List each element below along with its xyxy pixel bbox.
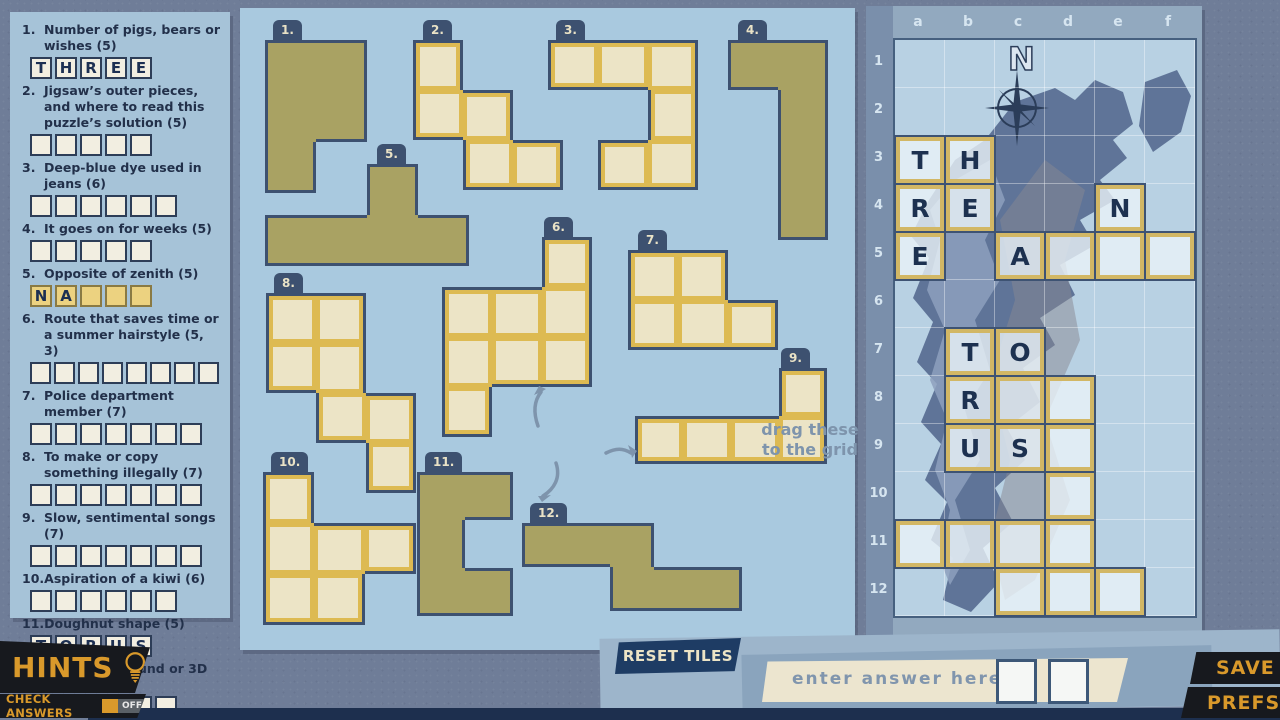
answer-cell[interactable]: [105, 195, 127, 217]
piece-cell: [367, 215, 418, 266]
piece-cell: [316, 293, 366, 343]
grid-tile[interactable]: O: [996, 329, 1044, 375]
answer-cell[interactable]: [54, 362, 75, 384]
piece-cell-face: [496, 341, 538, 380]
piece-cell: [463, 90, 513, 140]
clue-text: Slow, sentimental songs (7): [44, 510, 222, 542]
piece-cell: [417, 472, 465, 520]
grid-tile[interactable]: H: [946, 137, 994, 183]
answer-cell[interactable]: [30, 484, 52, 506]
piece-cell: [265, 40, 316, 91]
clue-answer-cells: [30, 134, 222, 156]
piece-cell-face: [420, 47, 456, 86]
answer-cell[interactable]: [155, 545, 177, 567]
answer-cell[interactable]: [130, 285, 152, 307]
grid-row-label: 10: [866, 486, 891, 501]
piece-cell: [610, 523, 654, 567]
piece-cell: [683, 416, 731, 464]
piece-cell: [492, 287, 542, 337]
piece-cell: [316, 393, 366, 443]
grid-tile[interactable]: [946, 521, 994, 567]
piece-cell-face: [635, 257, 674, 296]
grid-tile[interactable]: [996, 377, 1044, 423]
piece-cell-face: [642, 423, 679, 457]
piece-cell: [316, 40, 367, 91]
piece-number-tab: 5.: [377, 144, 406, 164]
piece-cell: [542, 287, 592, 337]
grid-tile[interactable]: [1046, 425, 1094, 471]
grid-row-label: 3: [866, 150, 891, 165]
answer-cell[interactable]: E: [105, 57, 127, 79]
clue-number: 9.: [22, 510, 44, 542]
clue-heading: 9.Slow, sentimental songs (7): [22, 510, 222, 542]
clue-answer-cells: [30, 240, 222, 262]
answer-cell[interactable]: [30, 240, 52, 262]
clue-item: 3.Deep-blue dye used in jeans (6): [22, 160, 222, 217]
piece-cell: [316, 215, 367, 266]
grid-row-label: 5: [866, 246, 891, 261]
piece-cell: [366, 393, 416, 443]
answer-cell[interactable]: [155, 195, 177, 217]
clue-item: 6.Route that saves time or a summer hair…: [22, 311, 222, 384]
answer-cell[interactable]: [80, 240, 102, 262]
grid-row-label: 11: [866, 534, 891, 549]
answer-cell[interactable]: [80, 590, 102, 612]
piece-cell: [314, 523, 365, 574]
answer-cell[interactable]: [130, 240, 152, 262]
piece-cell: [263, 574, 314, 625]
clue-number: 1.: [22, 22, 44, 54]
piece-cell: [778, 40, 828, 90]
piece-cell: [316, 343, 366, 393]
piece-cell-face: [270, 479, 307, 519]
piece-cell-face: [320, 347, 359, 389]
piece-cell: [648, 140, 698, 190]
piece-number-tab: 9.: [781, 348, 810, 368]
prefs-label: PREFS: [1207, 692, 1280, 714]
clue-number: 5.: [22, 266, 44, 282]
hints-label: HINTS: [12, 651, 114, 684]
check-answers-toggle[interactable]: OFF: [102, 699, 146, 713]
piece-cell: [365, 523, 416, 574]
piece-number-tab: 8.: [274, 273, 303, 293]
clue-answer-cells: [30, 484, 222, 506]
piece-cell-face: [682, 304, 724, 343]
toggle-knob: [102, 699, 118, 713]
answer-cell[interactable]: A: [55, 285, 77, 307]
grid-tile[interactable]: S: [996, 425, 1044, 471]
piece-cell: [442, 287, 492, 337]
piece-cell-face: [449, 391, 485, 430]
clue-item: 8.To make or copy something illegally (7…: [22, 449, 222, 506]
grid-row-label: 12: [866, 582, 891, 597]
piece-cell: [598, 140, 648, 190]
piece-cell-face: [449, 294, 488, 333]
piece-cell: [263, 472, 314, 523]
piece-cell: [266, 343, 316, 393]
clue-heading: 3.Deep-blue dye used in jeans (6): [22, 160, 222, 192]
clue-answer-cells: [30, 545, 222, 567]
piece-cell: [265, 142, 316, 193]
grid-col-label: a: [893, 14, 943, 30]
answer-cell[interactable]: R: [80, 57, 102, 79]
answer-cell[interactable]: [30, 134, 52, 156]
piece-cell: [635, 416, 683, 464]
piece-cell-face: [270, 527, 310, 570]
piece-number-tab: 12.: [530, 503, 567, 523]
piece-cell-face: [652, 47, 691, 86]
grid-row-label: 7: [866, 342, 891, 357]
piece-cell: [442, 387, 492, 437]
clue-heading: 1.Number of pigs, bears or wishes (5): [22, 22, 222, 54]
clue-item: 4.It goes on for weeks (5): [22, 221, 222, 262]
clue-answer-cells: NA: [30, 285, 222, 307]
piece-cell: [442, 337, 492, 387]
grid-tile[interactable]: [1046, 377, 1094, 423]
grid-tile[interactable]: A: [996, 233, 1044, 279]
piece-cell: [367, 164, 418, 215]
piece-number-tab: 4.: [738, 20, 767, 40]
piece-cell-face: [420, 94, 459, 133]
grid-row-label: 4: [866, 198, 891, 213]
piece-number-tab: 11.: [425, 452, 462, 472]
game-screen: 1.Number of pigs, bears or wishes (5)THR…: [0, 0, 1280, 720]
grid-tile[interactable]: [1046, 569, 1094, 615]
piece-cell: [678, 250, 728, 300]
clue-number: 8.: [22, 449, 44, 481]
piece-cell: [314, 574, 365, 625]
piece-number-tab: 1.: [273, 20, 302, 40]
answer-cell[interactable]: [55, 590, 77, 612]
answer-cell[interactable]: [155, 590, 177, 612]
grid-tile[interactable]: [1096, 569, 1144, 615]
answer-cell[interactable]: [105, 240, 127, 262]
clue-number: 6.: [22, 311, 44, 359]
grid-col-label: e: [1093, 14, 1143, 30]
piece-number-tab: 10.: [271, 452, 308, 472]
clue-item: 9.Slow, sentimental songs (7): [22, 510, 222, 567]
piece-cell-face: [467, 97, 506, 136]
clue-answer-cells: [30, 423, 222, 445]
piece-cell: [266, 293, 316, 343]
answer-prompt-label: enter answer here:: [792, 669, 1011, 689]
piece-cell-face: [687, 423, 727, 457]
piece-cell: [548, 40, 598, 90]
grid-tile[interactable]: E: [896, 233, 944, 279]
piece-cell-face: [602, 47, 644, 83]
piece-cell-face: [323, 397, 362, 436]
clue-item: 10.Aspiration of a kiwi (6): [22, 571, 222, 612]
grid-tile[interactable]: T: [896, 137, 944, 183]
piece-cell: [648, 90, 698, 140]
piece-cell-face: [273, 300, 312, 339]
piece-cell: [522, 523, 566, 567]
clue-text: Aspiration of a kiwi (6): [44, 571, 222, 587]
answer-cell[interactable]: [102, 362, 123, 384]
piece-cell-face: [732, 307, 771, 343]
piece-cell-face: [370, 400, 409, 439]
clue-item: 5.Opposite of zenith (5)NA: [22, 266, 222, 307]
piece-cell-face: [369, 530, 409, 567]
answer-cell[interactable]: [198, 362, 219, 384]
piece-cell: [316, 91, 367, 142]
grid-tile[interactable]: [1046, 473, 1094, 519]
check-answers-label: CHECK ANSWERS: [6, 692, 97, 720]
answer-cell[interactable]: [130, 545, 152, 567]
clue-text: Doughnut shape (5): [44, 616, 222, 632]
clue-text: Jigsaw’s outer pieces, and where to read…: [44, 83, 222, 131]
save-button[interactable]: SAVE: [1190, 652, 1280, 684]
piece-cell: [778, 190, 828, 240]
answer-cell[interactable]: [130, 484, 152, 506]
piece-cell: [513, 140, 563, 190]
piece-cell: [418, 215, 469, 266]
answer-cell[interactable]: [126, 362, 147, 384]
piece-number-tab: 2.: [423, 20, 452, 40]
answer-cell[interactable]: [180, 423, 202, 445]
grid-col-label: f: [1143, 14, 1193, 30]
grid-tile[interactable]: [996, 521, 1044, 567]
grid-tile[interactable]: U: [946, 425, 994, 471]
piece-cell: [698, 567, 742, 611]
map-grid-panel: abcdef 123456789101112 N THREENATORUS: [866, 6, 1202, 636]
grid-col-label: d: [1043, 14, 1093, 30]
clue-list: 1.Number of pigs, bears or wishes (5)THR…: [22, 22, 222, 718]
clue-answer-cells: [30, 195, 222, 217]
answer-cell[interactable]: [105, 484, 127, 506]
clue-number: 10.: [22, 571, 44, 587]
piece-cell: [610, 567, 654, 611]
clue-heading: 7.Police department member (7): [22, 388, 222, 420]
table-edge: [88, 708, 1280, 720]
answer-cell[interactable]: [105, 590, 127, 612]
clue-number: 7.: [22, 388, 44, 420]
clue-item: 2.Jigsaw’s outer pieces, and where to re…: [22, 83, 222, 156]
clue-heading: 4.It goes on for weeks (5): [22, 221, 222, 237]
answer-cell[interactable]: T: [30, 57, 52, 79]
piece-cell: [598, 40, 648, 90]
answer-cell[interactable]: [174, 362, 195, 384]
piece-cell-face: [449, 341, 488, 383]
tile-tray-panel: 1.2.3.4.5.6.7.8.9.10.11.12. drag these t…: [240, 8, 855, 650]
grid-row-label: 8: [866, 390, 891, 405]
piece-cell-face: [555, 47, 594, 83]
answer-cell[interactable]: [55, 134, 77, 156]
piece-cell: [492, 337, 542, 387]
reset-tiles-button[interactable]: RESET TILES: [615, 638, 741, 674]
clue-number: 2.: [22, 83, 44, 131]
answer-cell[interactable]: [55, 423, 77, 445]
answer-cell[interactable]: [180, 484, 202, 506]
answer-cell[interactable]: [105, 285, 127, 307]
piece-number-tab: 6.: [544, 217, 573, 237]
answer-cell[interactable]: [130, 423, 152, 445]
piece-cell-face: [635, 304, 674, 343]
answer-cell[interactable]: [180, 545, 202, 567]
grid-tile[interactable]: [1096, 233, 1144, 279]
check-answers-control[interactable]: CHECK ANSWERS OFF: [0, 694, 146, 718]
prefs-button[interactable]: PREFS: [1181, 687, 1280, 718]
hints-button[interactable]: HINTS: [0, 641, 150, 693]
answer-cell[interactable]: [130, 590, 152, 612]
piece-cell-face: [655, 94, 691, 136]
answer-cell[interactable]: [80, 423, 102, 445]
clue-answer-cells: [30, 362, 222, 384]
answer-cell[interactable]: [80, 285, 102, 307]
piece-cell: [654, 567, 698, 611]
answer-cell[interactable]: [105, 423, 127, 445]
grid-tile[interactable]: N: [1096, 185, 1144, 231]
piece-cell-face: [682, 257, 721, 296]
answer-cell[interactable]: [30, 423, 52, 445]
answer-cell[interactable]: [105, 545, 127, 567]
piece-cell: [265, 91, 316, 142]
piece-cell-face: [318, 530, 361, 570]
answer-cell[interactable]: [55, 545, 77, 567]
clue-heading: 11.Doughnut shape (5): [22, 616, 222, 632]
grid-tile[interactable]: [1046, 521, 1094, 567]
clue-heading: 10.Aspiration of a kiwi (6): [22, 571, 222, 587]
clue-text: Number of pigs, bears or wishes (5): [44, 22, 222, 54]
piece-cell-face: [517, 147, 556, 183]
answer-cell[interactable]: [80, 134, 102, 156]
piece-cell: [566, 523, 610, 567]
answer-cell[interactable]: [130, 195, 152, 217]
clue-number: 11.: [22, 616, 44, 632]
piece-number-tab: 3.: [556, 20, 585, 40]
map-grid[interactable]: N THREENATORUS: [893, 38, 1197, 618]
grid-tile[interactable]: T: [946, 329, 994, 375]
piece-cell: [265, 215, 316, 266]
piece-cell: [628, 300, 678, 350]
answer-cell[interactable]: [55, 484, 77, 506]
answer-cell[interactable]: [80, 195, 102, 217]
answer-cell[interactable]: [150, 362, 171, 384]
answer-cell[interactable]: [130, 134, 152, 156]
answer-cell[interactable]: [55, 195, 77, 217]
clue-heading: 6.Route that saves time or a summer hair…: [22, 311, 222, 359]
piece-cell: [417, 520, 465, 568]
reset-tiles-label: RESET TILES: [623, 647, 733, 665]
clue-text: To make or copy something illegally (7): [44, 449, 222, 481]
piece-cell: [628, 250, 678, 300]
answer-cell[interactable]: [30, 195, 52, 217]
grid-col-label: c: [993, 14, 1043, 30]
answer-cell[interactable]: N: [30, 285, 52, 307]
grid-col-label: b: [943, 14, 993, 30]
clue-text: Deep-blue dye used in jeans (6): [44, 160, 222, 192]
clue-item: 7.Police department member (7): [22, 388, 222, 445]
clue-text: Police department member (7): [44, 388, 222, 420]
answer-letter-box-2[interactable]: [1048, 659, 1089, 704]
piece-cell: [465, 568, 513, 616]
clue-answer-cells: THREE: [30, 57, 222, 79]
clue-item: 1.Number of pigs, bears or wishes (5)THR…: [22, 22, 222, 79]
piece-cell: [413, 90, 463, 140]
answer-cell[interactable]: [55, 240, 77, 262]
piece-cell: [728, 300, 778, 350]
answer-cell[interactable]: E: [130, 57, 152, 79]
piece-cell-face: [320, 300, 359, 339]
answer-cell[interactable]: [155, 423, 177, 445]
piece-cell: [465, 472, 513, 520]
answer-cell[interactable]: [78, 362, 99, 384]
clue-text: It goes on for weeks (5): [44, 221, 222, 237]
piece-cell-face: [273, 347, 312, 386]
grid-tile[interactable]: R: [896, 185, 944, 231]
answer-cell[interactable]: [105, 134, 127, 156]
answer-cell[interactable]: [80, 484, 102, 506]
clue-text: Opposite of zenith (5): [44, 266, 222, 282]
clue-heading: 5.Opposite of zenith (5): [22, 266, 222, 282]
piece-cell-face: [549, 244, 585, 283]
piece-cell-face: [546, 341, 585, 380]
answer-cell[interactable]: H: [55, 57, 77, 79]
piece-cell: [413, 40, 463, 90]
piece-cell: [779, 368, 827, 416]
piece-number-tab: 7.: [638, 230, 667, 250]
clue-number: 4.: [22, 221, 44, 237]
clue-panel: 1.Number of pigs, bears or wishes (5)THR…: [10, 12, 230, 618]
piece-cell-face: [496, 294, 538, 333]
answer-cell[interactable]: [30, 590, 52, 612]
clue-number: 3.: [22, 160, 44, 192]
piece-cell-face: [470, 144, 509, 183]
grid-tile[interactable]: [1146, 233, 1194, 279]
piece-cell: [263, 523, 314, 574]
grid-row-label: 9: [866, 438, 891, 453]
grid-row-label: 6: [866, 294, 891, 309]
piece-cell-face: [318, 578, 358, 618]
answer-cell[interactable]: [30, 545, 52, 567]
piece-cell: [463, 140, 513, 190]
answer-cell[interactable]: [80, 545, 102, 567]
piece-cell: [542, 337, 592, 387]
piece-cell-face: [270, 578, 310, 618]
clue-text: Route that saves time or a summer hairst…: [44, 311, 222, 359]
clue-heading: 2.Jigsaw’s outer pieces, and where to re…: [22, 83, 222, 131]
piece-cell: [678, 300, 728, 350]
answer-cell[interactable]: [155, 484, 177, 506]
grid-tile[interactable]: E: [946, 185, 994, 231]
grid-tile[interactable]: R: [946, 377, 994, 423]
piece-cell: [728, 40, 778, 90]
grid-tile[interactable]: [1046, 233, 1094, 279]
piece-cell-face: [373, 447, 409, 486]
answer-cell[interactable]: [30, 362, 51, 384]
piece-cell: [366, 443, 416, 493]
piece-cell-face: [652, 144, 691, 183]
piece-cell: [778, 90, 828, 140]
answer-letter-box-1[interactable]: [996, 659, 1037, 704]
piece-cell-face: [546, 291, 585, 333]
piece-cell: [542, 237, 592, 287]
grid-row-label: 2: [866, 102, 891, 117]
grid-tile[interactable]: [996, 569, 1044, 615]
clue-answer-cells: [30, 590, 222, 612]
clue-heading: 8.To make or copy something illegally (7…: [22, 449, 222, 481]
piece-cell-face: [605, 147, 644, 183]
piece-cell: [417, 568, 465, 616]
piece-cell: [778, 140, 828, 190]
save-label: SAVE: [1216, 657, 1275, 679]
grid-row-label: 1: [866, 54, 891, 69]
piece-cell-face: [786, 375, 820, 412]
piece-cell: [648, 40, 698, 90]
grid-tile[interactable]: [896, 521, 944, 567]
